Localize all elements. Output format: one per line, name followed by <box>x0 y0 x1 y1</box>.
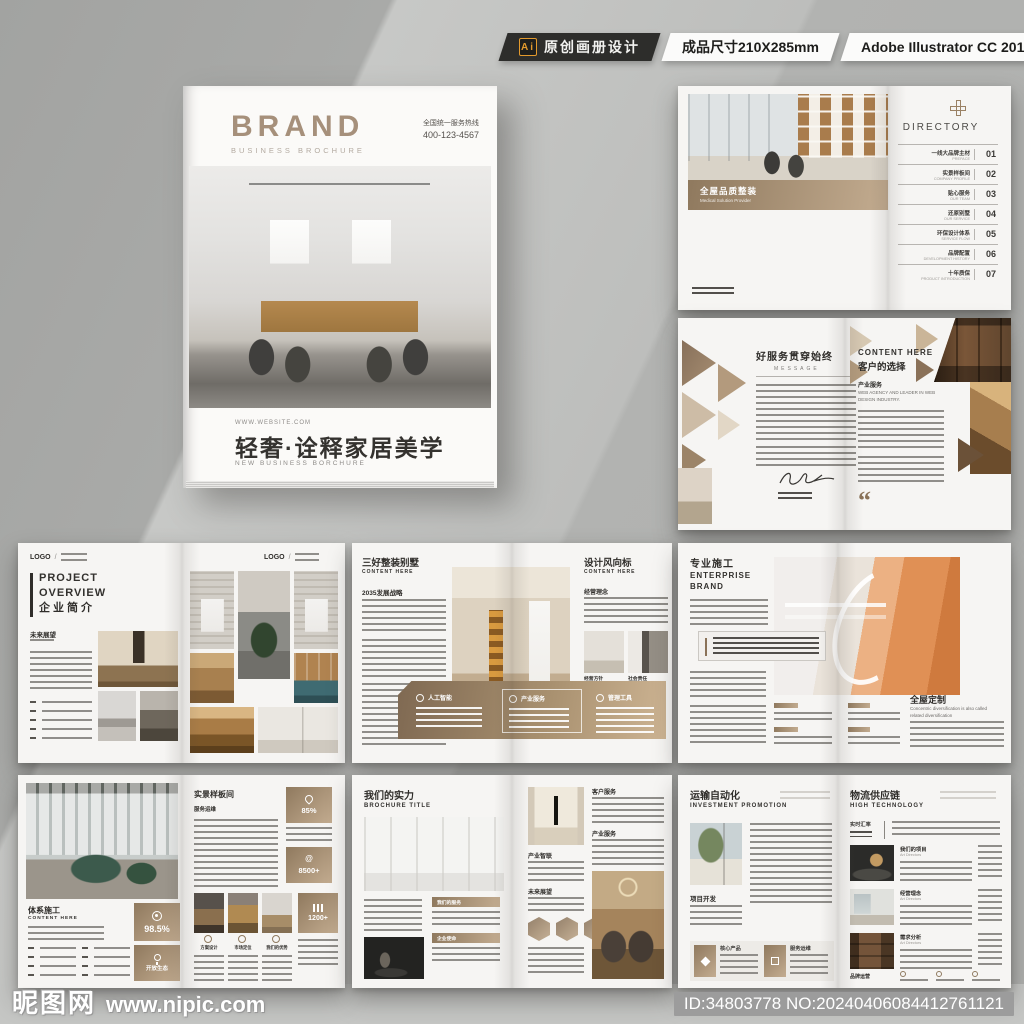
text-lines <box>972 979 1000 985</box>
badge-circle-icon <box>238 935 246 943</box>
band-column: 管理工具 <box>596 693 658 733</box>
text-lines <box>592 839 664 865</box>
section-label: 经营理念 <box>584 587 608 596</box>
divider <box>974 249 975 260</box>
bullet-list-lines <box>30 701 92 745</box>
text-lines <box>528 897 584 913</box>
triangle-decor <box>718 364 746 402</box>
row-sub: Art Directors <box>900 897 921 901</box>
band-column: 人工智能 <box>416 693 488 731</box>
mini-list-lines <box>978 889 1002 923</box>
label-accent <box>774 727 798 732</box>
triangle-decor <box>682 340 716 386</box>
hexagon-badge <box>556 917 578 941</box>
text-lines <box>194 955 224 981</box>
text-lines <box>30 651 92 693</box>
stat-box-percentage: 98.5% <box>134 903 180 941</box>
showroom-title: 实景样板间 <box>194 789 234 800</box>
photo-bedroom-light <box>850 889 894 925</box>
row-label: 需求分析 <box>900 933 921 941</box>
icon-panel: 核心产品 服务运维 <box>690 941 834 981</box>
stat-box-at: @ 8500+ <box>286 847 332 883</box>
photo-showroom-small <box>584 631 624 673</box>
directory-list: 一线大品牌主材PREFACE 01 实景样板间COMPANY PROFILE 0… <box>898 144 998 284</box>
directory-item-num: 01 <box>986 149 996 159</box>
stat-value: 85% <box>301 806 316 815</box>
photo-office-shelves <box>688 94 888 180</box>
text-lines <box>900 979 928 985</box>
badge-circle-icon <box>272 935 280 943</box>
logo-header-right: LOGO / <box>264 553 319 561</box>
section-sub: WEB AGENCY AND LEADER IN WEB DESIGN INDU… <box>858 390 950 404</box>
signature-caption-lines <box>778 492 812 500</box>
cube-icon <box>771 957 779 965</box>
feature-icon <box>596 694 604 702</box>
photo-product-dark <box>850 845 894 881</box>
text-lines-white <box>416 707 482 731</box>
photo-loft-staircase <box>774 557 960 695</box>
photo-fireplace <box>528 787 584 845</box>
bullet-list-lines <box>28 947 76 981</box>
directory-item-cn: 还原别墅 <box>944 209 970 217</box>
spread-villa: 三好整装别墅 CONTENT HERE 2035发展战略 设计风向标 CONTE… <box>352 543 672 763</box>
text-lines <box>432 911 500 929</box>
callout-box <box>698 631 826 661</box>
triangle-decor <box>916 358 934 382</box>
top-info-bar: Ai 原创画册设计 成品尺寸210X285mm Adobe Illustrato… <box>503 33 1024 61</box>
signature-icon <box>778 468 838 495</box>
stat-box-chart: 1200+ <box>298 893 338 933</box>
logo-separator: / <box>55 554 57 561</box>
badge-software-label: Adobe Illustrator CC 2018 <box>861 39 1024 55</box>
badge-size-label: 成品尺寸210X285mm <box>682 37 819 57</box>
label-accent <box>774 703 798 708</box>
badge-original-label: 原创画册设计 <box>544 37 640 57</box>
photo-stone-wall <box>190 571 234 649</box>
bulb-icon <box>154 954 161 961</box>
text-lines <box>528 947 584 977</box>
at-icon: @ <box>305 855 313 863</box>
photo-caption: 经营方针 <box>584 675 603 682</box>
callout-accent <box>705 638 707 656</box>
cover-hotline-label: 全国统一服务热线 <box>423 118 479 128</box>
watermark-site: 昵图网 <box>12 983 96 1020</box>
directory-item-num: 02 <box>986 169 996 179</box>
strength-title: 我们的实力 <box>364 787 414 802</box>
text-lines <box>364 899 422 931</box>
logo-text: LOGO <box>264 554 285 561</box>
text-lines <box>900 861 972 881</box>
col-heading: 客户服务 <box>592 787 616 796</box>
logistics-title-left: 运输自动化 <box>690 787 740 802</box>
catalog-band-title: 全屋品质整装 <box>700 185 757 197</box>
catalog-band-subtitle: Medical Solution Provider <box>700 198 751 203</box>
band-label: 产业服务 <box>521 694 545 703</box>
photo-small-interior <box>194 893 224 933</box>
photo-caption: 市场定位 <box>228 945 258 951</box>
label-accent <box>848 727 870 732</box>
directory-item: 实景样板间COMPANY PROFILE 02 <box>898 164 998 184</box>
directory-item-cn: 品牌配置 <box>924 249 970 257</box>
directory-item-cn: 十年质保 <box>921 269 970 277</box>
cover-brand-sub: BUSINESS BROCHURE <box>231 146 365 155</box>
text-lines <box>750 823 832 903</box>
publisher-text-lines <box>692 287 734 296</box>
photo-center-hall <box>238 571 290 679</box>
directory-item: 品牌配置DEVELOPMENT HISTORY 06 <box>898 244 998 264</box>
service-icon-box <box>764 945 786 977</box>
text-lines <box>432 947 500 965</box>
adobe-illustrator-icon: Ai <box>519 38 537 56</box>
photo-closet <box>850 933 894 969</box>
text-lines-white <box>509 708 569 728</box>
text-lines <box>858 456 944 486</box>
text-lines <box>848 736 900 746</box>
customer-choice-title: 客户的选择 <box>858 359 906 373</box>
stat-box-pin: 85% <box>286 787 332 823</box>
spread-overview: LOGO / PROJECT OVERVIEW 企业简介 未来展望 LOGO / <box>18 543 345 763</box>
stat-value: 开放生态 <box>146 964 168 972</box>
badge-original-design: Ai 原创画册设计 <box>498 33 660 61</box>
quote-mark-icon: “ <box>858 486 871 516</box>
text-lines <box>774 736 832 746</box>
label-row <box>848 727 900 746</box>
directory-item-en: SERVICE FLOW <box>937 237 970 241</box>
design-trend-title: 设计风向标 <box>584 555 632 569</box>
text-lines <box>790 954 828 976</box>
text-lines <box>774 712 832 722</box>
divider <box>974 169 975 180</box>
cover-hotline: 全国统一服务热线 400-123-4567 <box>423 118 479 140</box>
message-subtitle: MESSAGE <box>774 366 820 372</box>
photo-window-scene <box>690 823 742 885</box>
content-here-title: CONTENT HERE <box>858 348 933 357</box>
page-stack-edge <box>186 481 494 488</box>
directory-item-en: PREFACE <box>931 157 970 161</box>
directory-item-en: PRODUCT INTRODUCTION <box>921 277 970 281</box>
cover-title: 轻奢·诠释家居美学 <box>235 429 445 463</box>
photo-white-living <box>364 817 504 891</box>
photo-wardrobe <box>934 318 1011 382</box>
label-accent <box>848 703 870 708</box>
directory-item-num: 03 <box>986 189 996 199</box>
mission-label: 企业使命 <box>432 933 500 943</box>
logo-tagline-lines <box>61 553 87 561</box>
directory-item: 环保设计体系SERVICE FLOW 05 <box>898 224 998 244</box>
col-heading: 产业服务 <box>592 829 616 838</box>
text-lines <box>528 861 584 883</box>
spread-showroom: 体系施工 CONTENT HERE 98.5% 开放生态 实景样板间 服务运维 … <box>18 775 345 988</box>
logo-text: LOGO <box>30 554 51 561</box>
mini-list-lines <box>978 933 1002 967</box>
text-lines <box>690 905 742 929</box>
feature-band: 人工智能 产业服务 管理工具 <box>398 681 666 739</box>
strength-subtitle: BROCHURE TITLE <box>364 803 431 809</box>
photo-light-living <box>258 707 338 753</box>
label-row <box>848 703 900 722</box>
text-lines <box>690 671 766 699</box>
sidebar-label: 实时汇率 <box>850 821 872 828</box>
custom-home-caption: Concentric diversification is also calle… <box>910 706 1002 720</box>
badge-software: Adobe Illustrator CC 2018 <box>840 33 1024 61</box>
spread-logistics: 运输自动化 INVESTMENT PROMOTION 项目开发 核心产品 服务运… <box>678 775 1011 988</box>
spread-strength: 我们的实力 BROCHURE TITLE 我们的服务 企业使命 产业智联 未来展… <box>352 775 672 988</box>
photo-dining-room <box>592 871 664 979</box>
villa-title: 三好整装别墅 <box>362 555 419 569</box>
stat-value: 8500+ <box>298 866 319 875</box>
text-lines-white <box>596 707 654 733</box>
stat-box-eco: 开放生态 <box>134 945 180 981</box>
triangle-decor <box>682 392 716 438</box>
divider <box>756 376 856 377</box>
section-label: 产业服务 <box>858 380 882 389</box>
text-lines <box>362 599 446 633</box>
badge-circle-icon <box>204 935 212 943</box>
section-label: 项目开发 <box>690 893 716 903</box>
text-lines <box>690 705 766 745</box>
footer-icon <box>936 971 942 977</box>
directory-item-en: OUR SERVICE <box>944 217 970 221</box>
cover-brand-block: BRAND BUSINESS BROCHURE <box>231 110 365 155</box>
directory-item-num: 07 <box>986 269 996 279</box>
band-label: 人工智能 <box>428 693 452 702</box>
text-lines <box>910 721 1004 749</box>
label-row <box>774 703 832 722</box>
feature-icon <box>416 694 424 702</box>
overview-title-block: PROJECT OVERVIEW 企业简介 <box>39 571 106 616</box>
title-line3: 企业简介 <box>39 601 106 616</box>
logo-header-left: LOGO / <box>30 553 87 561</box>
bullet-list-lines <box>82 947 130 981</box>
photo-kitchen <box>190 707 254 753</box>
label-row <box>774 727 832 746</box>
divider <box>974 149 975 160</box>
cross-icon <box>950 100 964 114</box>
text-lines <box>720 954 758 976</box>
badge-size: 成品尺寸210X285mm <box>661 33 839 61</box>
photo-staircase <box>970 382 1011 474</box>
hexagon-badge <box>528 917 550 941</box>
photo-stone-wall <box>294 571 338 649</box>
directory-item-num: 06 <box>986 249 996 259</box>
photo-small-interior <box>228 893 258 933</box>
watermark-url: www.nipic.com <box>106 992 265 1018</box>
text-lines <box>690 599 768 625</box>
stat-value: 1200+ <box>308 915 328 922</box>
text-lines <box>892 821 1000 835</box>
row-label: 我们的项目 <box>900 845 927 853</box>
construction-sub1: ENTERPRISE <box>690 571 751 580</box>
cover-hotline-number: 400-123-4567 <box>423 130 479 140</box>
custom-home-title: 全屋定制 <box>910 693 946 706</box>
row-sub: Art Directors <box>900 853 921 857</box>
system-title: 体系施工 <box>28 905 60 916</box>
text-lines <box>584 597 668 625</box>
photo-cafe <box>190 653 234 703</box>
callout-text-lines <box>713 637 819 657</box>
text-lines <box>848 712 900 722</box>
directory-item-cn: 贴心服务 <box>948 189 970 197</box>
image-id-badge: ID:34803778 NO:20240406084412761121 <box>674 992 1014 1016</box>
directory-item-en: DEVELOPMENT HISTORY <box>924 257 970 261</box>
sidebar-sub-lines <box>850 831 872 837</box>
directory-item: 十年质保PRODUCT INTRODUCTION 07 <box>898 264 998 284</box>
cover-website: WWW.WEBSITE.COM <box>235 420 311 426</box>
text-lines <box>592 797 664 823</box>
photo-bedroom <box>98 691 136 741</box>
watermark: 昵图网 www.nipic.com <box>12 983 265 1020</box>
logistics-subtitle-right: HIGH TECHNOLOGY <box>850 803 924 809</box>
photo-sofa <box>140 691 178 741</box>
text-lines <box>228 955 258 981</box>
text-lines <box>28 926 104 940</box>
divider <box>974 209 975 220</box>
cover-brand: BRAND <box>231 110 365 144</box>
logistics-title-right: 物流供应链 <box>850 787 900 802</box>
band-column-boxed: 产业服务 <box>502 689 582 733</box>
photo-caption: 我们的优势 <box>262 945 292 951</box>
mini-list-lines <box>978 845 1002 879</box>
directory-item: 还原别墅OUR SERVICE 04 <box>898 204 998 224</box>
feature-icon <box>509 695 517 703</box>
photo-dark-art <box>364 937 424 979</box>
sidebar-block: 实时汇率 <box>850 821 872 837</box>
title-line1: PROJECT <box>39 571 106 586</box>
photo-interior-corner <box>678 468 712 524</box>
logo-separator: / <box>289 554 291 561</box>
divider <box>974 189 975 200</box>
directory-item-cn: 一线大品牌主材 <box>931 149 970 157</box>
col-heading: 未来展望 <box>528 887 552 896</box>
logo-tagline-lines <box>295 553 319 561</box>
photo-corridor-small <box>628 631 668 673</box>
divider <box>974 229 975 240</box>
section-label: 2035发展战略 <box>362 587 402 597</box>
footer-icon <box>972 971 978 977</box>
directory-item-en: COMPANY PROFILE <box>934 177 970 181</box>
faint-text-lines <box>940 791 996 803</box>
text-lines <box>194 819 278 887</box>
directory-title: DIRECTORY <box>886 122 996 133</box>
construction-title: 专业施工 <box>690 555 734 570</box>
directory-item: 一线大品牌主材PREFACE 01 <box>898 144 998 164</box>
logistics-subtitle-left: INVESTMENT PROMOTION <box>690 803 787 809</box>
location-pin-icon <box>303 793 314 804</box>
text-lines <box>298 939 338 969</box>
directory-item-cn: 实景样板间 <box>934 169 970 177</box>
directory-item: 贴心服务OUR TEAM 03 <box>898 184 998 204</box>
text-lines <box>262 955 292 981</box>
villa-subtitle: CONTENT HERE <box>362 569 413 575</box>
directory-item-num: 05 <box>986 229 996 239</box>
spread-message: 好服务贯穿始终 MESSAGE CONTENT HERE 客户的选择 产业服务 … <box>678 318 1011 530</box>
text-lines <box>936 979 964 985</box>
title-line2: OVERVIEW <box>39 586 106 601</box>
section-sub-lines <box>30 639 54 644</box>
system-subtitle: CONTENT HERE <box>28 916 78 921</box>
directory-item-en: OUR TEAM <box>948 197 970 201</box>
faint-text-lines <box>780 791 830 803</box>
text-lines <box>756 446 856 466</box>
title-accent-bar <box>30 573 33 617</box>
diamond-icon <box>700 956 710 966</box>
photo-green-sofa-room <box>26 783 178 899</box>
photo-small-interior <box>262 893 292 933</box>
bar-chart-icon <box>313 904 323 912</box>
section-label: 服务运维 <box>194 805 216 813</box>
service-label: 我们的服务 <box>432 897 500 907</box>
spread-catalog: 全屋品质整装 Medical Solution Provider DIRECTO… <box>678 86 1011 310</box>
row-label: 经营理念 <box>900 889 921 897</box>
text-lines <box>900 949 972 969</box>
footer-icon <box>900 971 906 977</box>
footer-label: 品牌运营 <box>850 973 870 980</box>
construction-sub2: BRAND <box>690 582 724 591</box>
spread-construction: 专业施工 ENTERPRISE BRAND 全屋定制 Concentric di… <box>678 543 1011 763</box>
band-label: 管理工具 <box>608 693 632 702</box>
directory-item-num: 04 <box>986 209 996 219</box>
photo-caption: 社会责任 <box>628 675 647 682</box>
text-lines <box>286 827 332 843</box>
text-lines <box>362 639 446 677</box>
product-icon-box <box>694 945 716 977</box>
mockup-stage: Ai 原创画册设计 成品尺寸210X285mm Adobe Illustrato… <box>0 0 1024 1024</box>
col-heading: 产业智联 <box>528 851 552 860</box>
text-lines <box>858 410 944 450</box>
divider <box>974 269 975 280</box>
stat-value: 98.5% <box>144 924 170 934</box>
message-title: 好服务贯穿始终 <box>756 348 833 363</box>
text-lines <box>900 905 972 925</box>
design-trend-subtitle: CONTENT HERE <box>584 569 635 575</box>
cover-subtitle: NEW BUSINESS BORCHURE <box>235 460 366 467</box>
section-label: 未来展望 <box>30 629 56 639</box>
photo-cabinet <box>294 653 338 703</box>
brochure-cover: BRAND BUSINESS BROCHURE 全国统一服务热线 400-123… <box>183 86 497 488</box>
catalog-title-band: 全屋品质整装 Medical Solution Provider <box>688 180 888 210</box>
target-icon <box>152 911 162 921</box>
cover-office-photo <box>189 166 491 408</box>
panel-label: 服务运维 <box>790 945 811 952</box>
text-lines <box>756 384 856 440</box>
directory-item-cn: 环保设计体系 <box>937 229 970 237</box>
triangle-decor <box>718 410 740 440</box>
photo-living-room <box>98 631 178 687</box>
divider <box>884 821 885 839</box>
photo-caption: 方案设计 <box>194 945 224 951</box>
row-sub: Art Directors <box>900 941 921 945</box>
panel-label: 核心产品 <box>720 945 741 952</box>
